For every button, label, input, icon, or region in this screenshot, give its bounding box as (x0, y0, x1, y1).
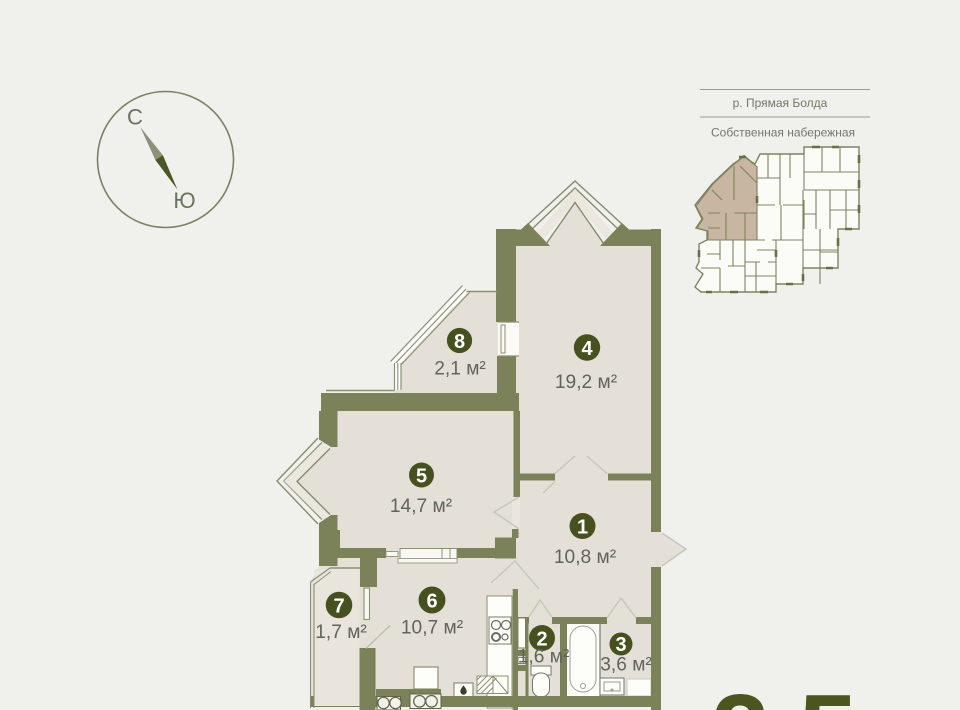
svg-text:7: 7 (333, 596, 344, 618)
svg-text:19,2 м²: 19,2 м² (555, 372, 618, 393)
svg-text:3,6 м²: 3,6 м² (600, 655, 652, 676)
svg-text:С: С (127, 105, 143, 130)
svg-text:1: 1 (577, 517, 588, 539)
svg-text:2,1 м²: 2,1 м² (434, 359, 486, 380)
svg-text:1,7 м²: 1,7 м² (315, 622, 367, 643)
svg-text:2,5: 2,5 (711, 674, 857, 710)
svg-text:8: 8 (454, 331, 465, 353)
svg-text:10,8 м²: 10,8 м² (554, 547, 617, 568)
svg-text:10,7 м²: 10,7 м² (401, 618, 464, 639)
svg-text:3: 3 (615, 634, 626, 656)
svg-text:4: 4 (581, 338, 593, 360)
svg-text:Ю: Ю (173, 188, 195, 213)
svg-text:14,7 м²: 14,7 м² (390, 496, 453, 517)
svg-text:Собственная набережная: Собственная набережная (711, 126, 855, 140)
svg-text:6: 6 (426, 591, 437, 613)
svg-text:р. Прямая Болда: р. Прямая Болда (733, 96, 828, 110)
svg-text:1,6 м²: 1,6 м² (518, 647, 570, 668)
svg-text:5: 5 (416, 466, 427, 488)
